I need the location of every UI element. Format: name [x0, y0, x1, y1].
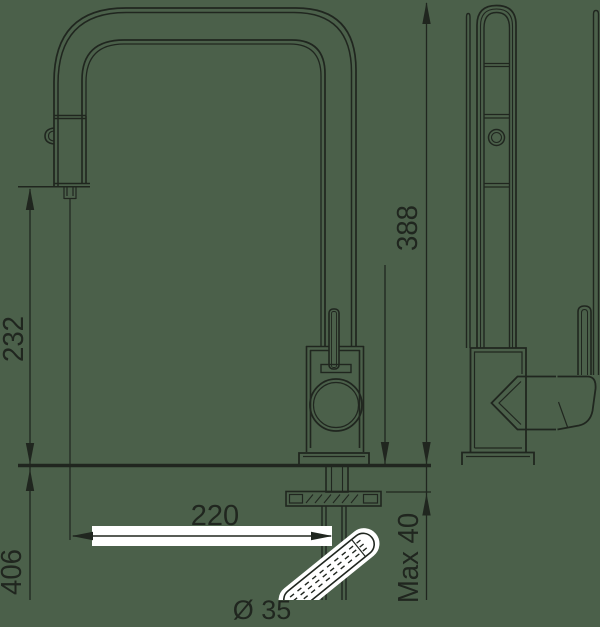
lever-rod-front: [329, 309, 339, 369]
spray-nozzle: [64, 187, 76, 199]
spout-arch-outer-wall: [54, 8, 356, 346]
spray-button: [45, 128, 54, 144]
dim-220-line: [70, 198, 333, 546]
hose-side: [467, 14, 471, 349]
mixer-body-side: [462, 11, 599, 466]
faucet-dimension-drawing-page: { "page": { "type": "technical-dimension…: [0, 0, 600, 600]
spray-button-side: [489, 130, 505, 146]
lever-rod-side: [578, 306, 591, 375]
mixer-body-front: [299, 309, 369, 465]
dim-label-406: 406: [0, 539, 29, 606]
dim-label-220: 220: [175, 499, 255, 533]
ball-joint: [310, 379, 362, 431]
spout-arch-inner-wall: [82, 40, 325, 346]
docked-head-chevron: [492, 377, 557, 430]
dim-extension-line: [381, 265, 389, 465]
spout-column-side: [477, 6, 516, 349]
dim-label-max40: Max 40: [392, 506, 426, 611]
dim-label-hole-diameter: Ø 35: [222, 593, 302, 623]
mounting-shank: [326, 466, 348, 492]
base-flange-front: [299, 453, 369, 465]
tall-lever-rod: [594, 11, 599, 376]
dim-label-232: 232: [0, 306, 31, 373]
faucet-line-drawing: [0, 0, 600, 600]
base-flange-side: [462, 453, 534, 466]
faucet-side-view: [462, 6, 599, 466]
threaded-rod-hatch: [306, 495, 358, 504]
mounting-bracket: [286, 492, 381, 507]
handle-base-side: [558, 377, 596, 430]
dim-label-388: 388: [391, 195, 425, 262]
